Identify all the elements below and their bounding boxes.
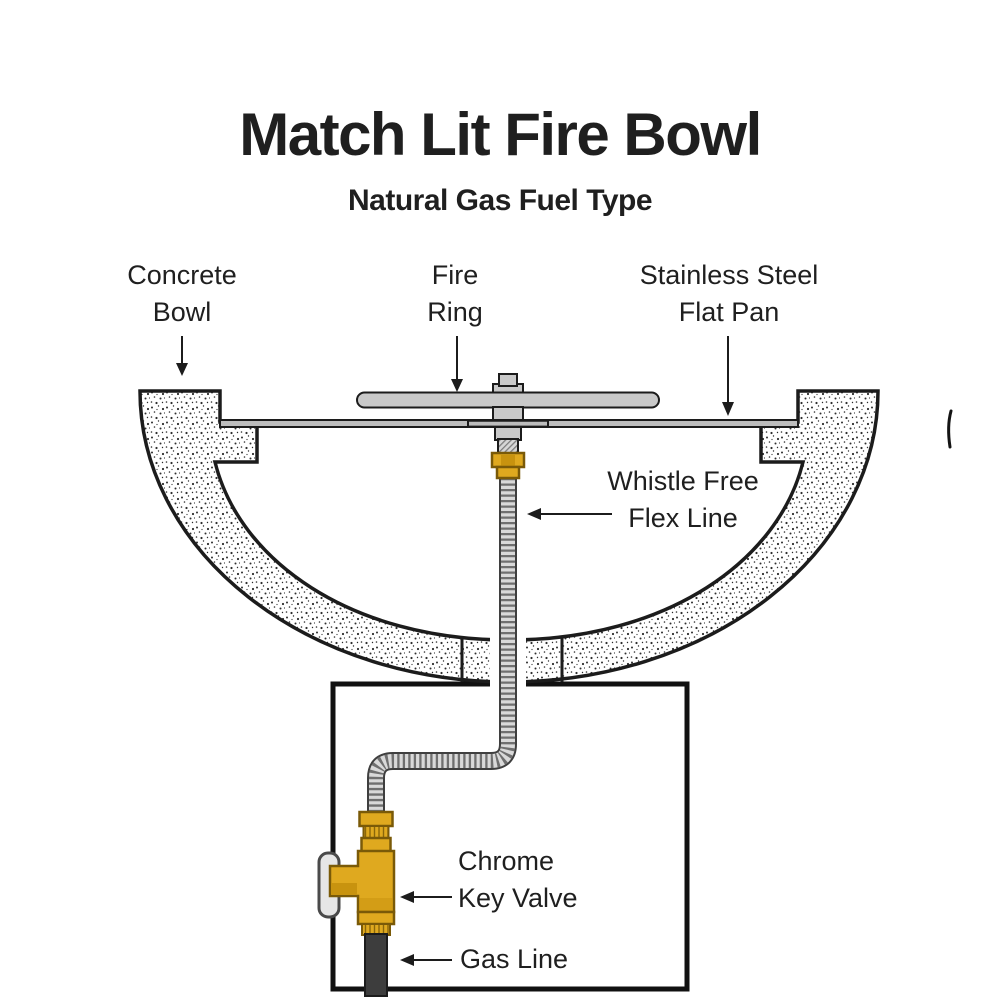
label-fire-ring: Fire Ring xyxy=(427,257,483,331)
valve-bottom-nut xyxy=(358,912,394,924)
label-fire-ring-line1: Fire xyxy=(427,257,483,294)
label-concrete-bowl-line2: Bowl xyxy=(127,294,237,331)
page-title: Match Lit Fire Bowl xyxy=(0,100,1000,169)
concrete-bowl-arrow xyxy=(176,336,188,376)
fire-ring-shape xyxy=(357,393,659,408)
label-key-valve-line2: Key Valve xyxy=(458,880,578,917)
valve-body-shading xyxy=(359,898,393,911)
brass-union-shading xyxy=(501,455,515,466)
fitting-mid-nut xyxy=(493,407,523,421)
valve-top-nut xyxy=(360,812,393,826)
label-gas-line: Gas Line xyxy=(460,941,568,978)
flex-line-arrow xyxy=(527,508,612,520)
fire-bowl-diagram: Match Lit Fire Bowl Natural Gas Fuel Typ… xyxy=(0,0,1000,1000)
label-key-valve: Chrome Key Valve xyxy=(458,843,578,917)
stray-mark xyxy=(949,411,951,447)
label-gas-line-line1: Gas Line xyxy=(460,941,568,978)
fire-ring-arrow xyxy=(451,336,463,392)
label-concrete-bowl-line1: Concrete xyxy=(127,257,237,294)
label-flat-pan: Stainless Steel Flat Pan xyxy=(640,257,819,331)
label-fire-ring-line2: Ring xyxy=(427,294,483,331)
label-flex-line-line2: Flex Line xyxy=(607,500,759,537)
label-flex-line: Whistle Free Flex Line xyxy=(607,463,759,537)
brass-union-lower xyxy=(497,467,519,478)
gas-line-pipe xyxy=(365,934,387,996)
label-flat-pan-line1: Stainless Steel xyxy=(640,257,819,294)
label-concrete-bowl: Concrete Bowl xyxy=(127,257,237,331)
page-subtitle: Natural Gas Fuel Type xyxy=(0,184,1000,218)
fitting-top-cap xyxy=(499,374,517,386)
valve-arm-shading xyxy=(331,883,357,895)
label-flex-line-line1: Whistle Free xyxy=(607,463,759,500)
label-key-valve-line1: Chrome xyxy=(458,843,578,880)
label-flat-pan-line2: Flat Pan xyxy=(640,294,819,331)
flat-pan-arrow xyxy=(722,336,734,416)
